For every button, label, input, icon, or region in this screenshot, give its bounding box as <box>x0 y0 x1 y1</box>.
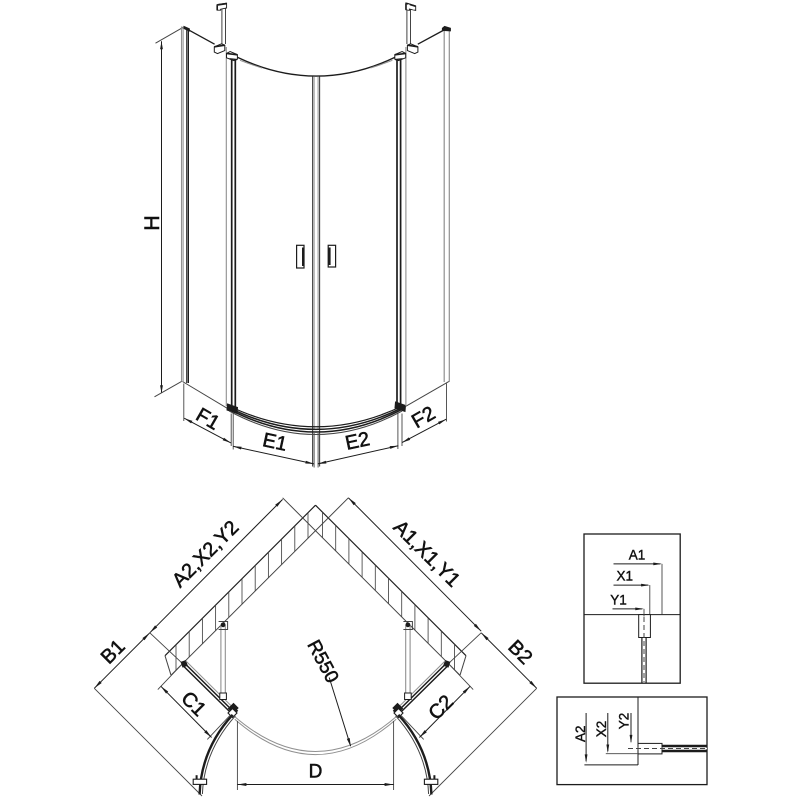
svg-text:H: H <box>140 215 164 231</box>
svg-text:Y2: Y2 <box>616 713 631 730</box>
svg-text:Y1: Y1 <box>610 592 627 607</box>
svg-text:X1: X1 <box>616 569 633 584</box>
svg-text:X2: X2 <box>594 721 609 738</box>
svg-text:A2: A2 <box>573 725 588 742</box>
svg-text:A1: A1 <box>629 547 646 562</box>
svg-text:D: D <box>309 762 323 783</box>
